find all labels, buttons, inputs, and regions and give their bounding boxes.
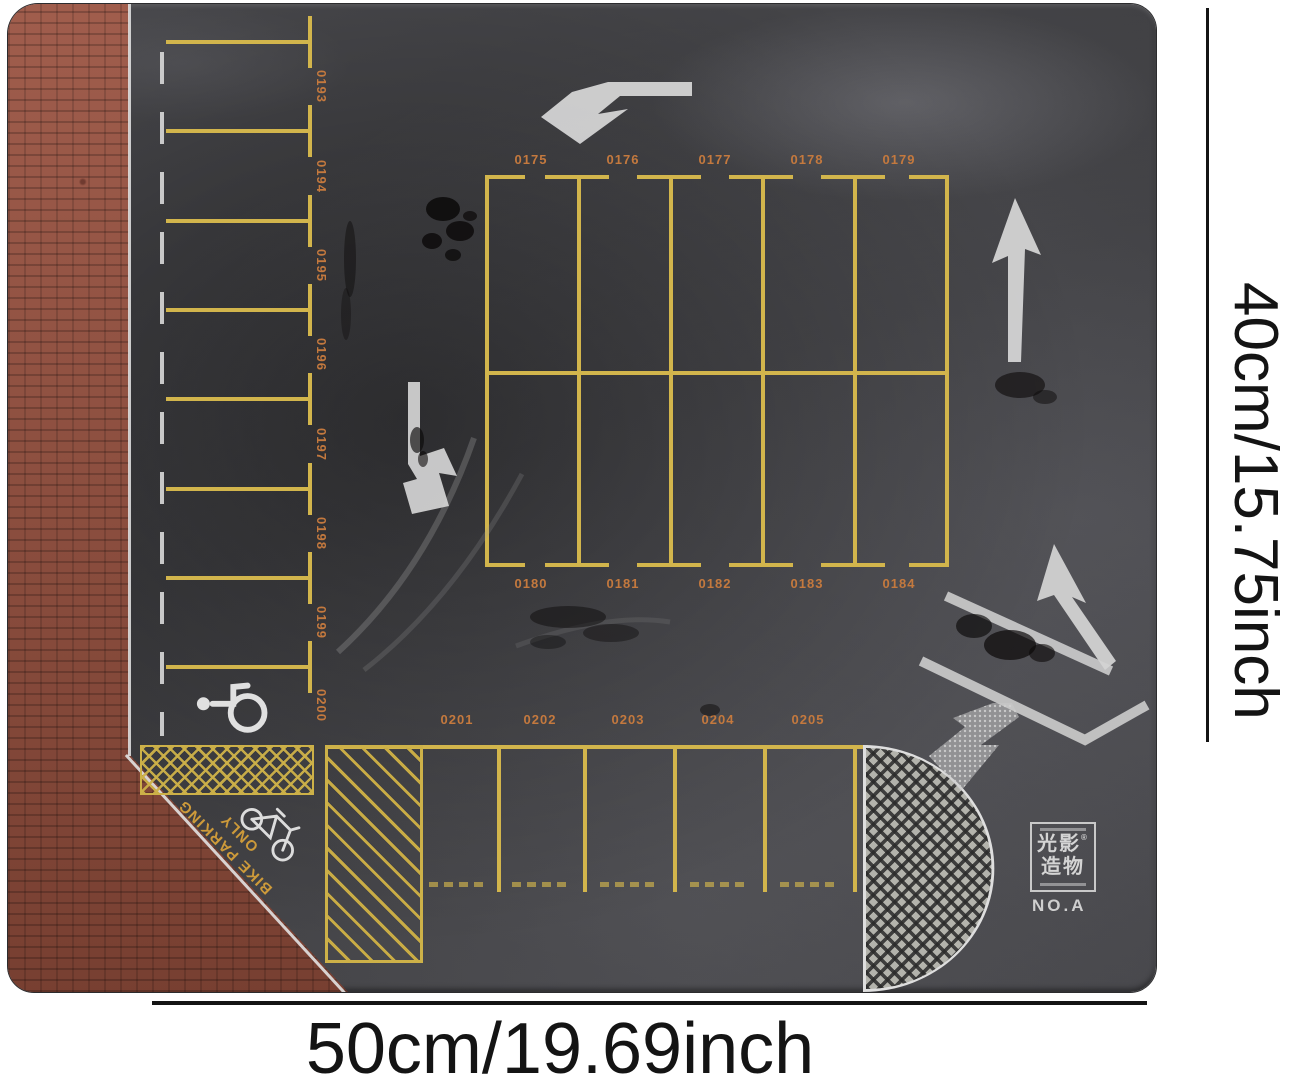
brand-logo: 光影® 造物 <box>1030 822 1096 892</box>
logo-small-text <box>1040 828 1086 831</box>
height-dimension-label: 40cm/15.75inch <box>1220 282 1291 720</box>
logo-model-number: NO.A <box>1032 896 1102 916</box>
width-dimension-label: 50cm/19.69inch <box>260 1008 860 1088</box>
height-dimension-line <box>1206 8 1209 742</box>
turn-arrow-icon <box>541 82 692 144</box>
logo-chars-line2: 造物 <box>1032 856 1094 879</box>
straight-arrow-icon <box>992 198 1041 362</box>
logo-small-text <box>1040 883 1086 886</box>
logo-chars-line1: 光影 <box>1037 833 1081 855</box>
chevron-line <box>921 661 1147 740</box>
oil-stains <box>341 197 1057 716</box>
product-photo: 0193 0194 0195 0196 0197 0198 0199 0200 <box>0 0 1302 1088</box>
worn-arrow-icon <box>929 703 1019 791</box>
road-markings-layer <box>8 4 1156 992</box>
width-dimension-line <box>152 1001 1147 1005</box>
registered-mark: ® <box>1081 833 1089 842</box>
parking-playmat: 0193 0194 0195 0196 0197 0198 0199 0200 <box>8 4 1156 992</box>
